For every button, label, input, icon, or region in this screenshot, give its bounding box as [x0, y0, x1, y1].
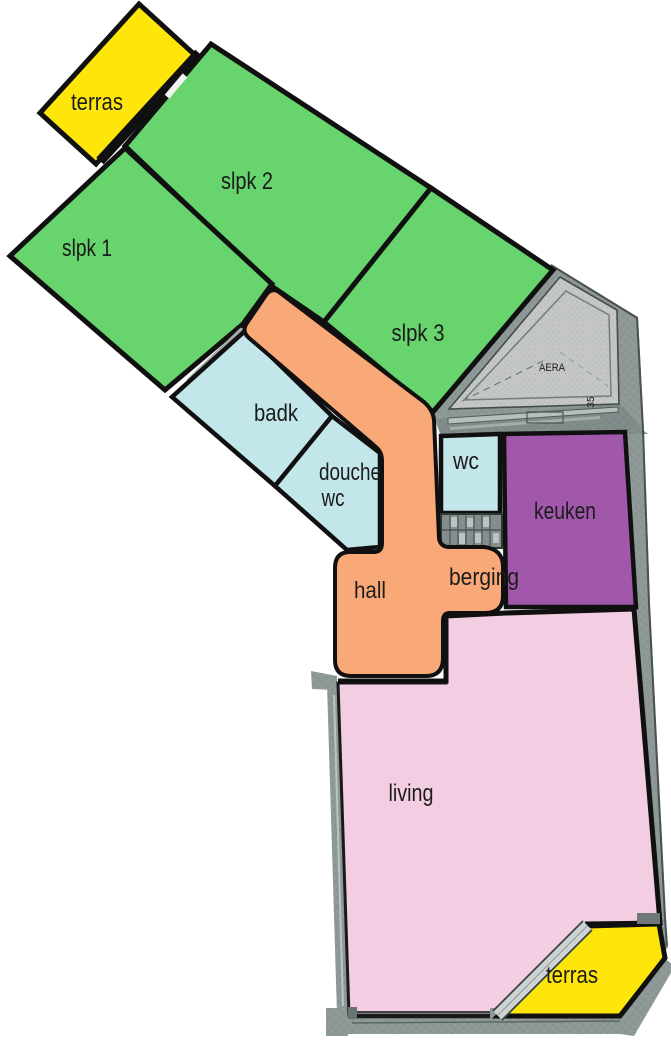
svg-text:terras: terras [546, 962, 598, 989]
svg-text:wc: wc [321, 485, 345, 512]
svg-text:living: living [389, 780, 434, 807]
svg-text:douche: douche [319, 459, 381, 486]
svg-text:wc: wc [452, 448, 479, 475]
svg-text:35: 35 [586, 396, 597, 408]
svg-text:terras: terras [71, 89, 123, 116]
svg-text:keuken: keuken [534, 498, 596, 525]
svg-text:hall: hall [354, 577, 386, 603]
svg-text:slpk 1: slpk 1 [62, 235, 112, 262]
svg-text:slpk 2: slpk 2 [221, 168, 273, 195]
svg-text:berging: berging [449, 564, 519, 591]
svg-text:AERA: AERA [539, 362, 566, 374]
svg-text:slpk 3: slpk 3 [392, 320, 445, 347]
svg-text:badk: badk [254, 400, 299, 427]
